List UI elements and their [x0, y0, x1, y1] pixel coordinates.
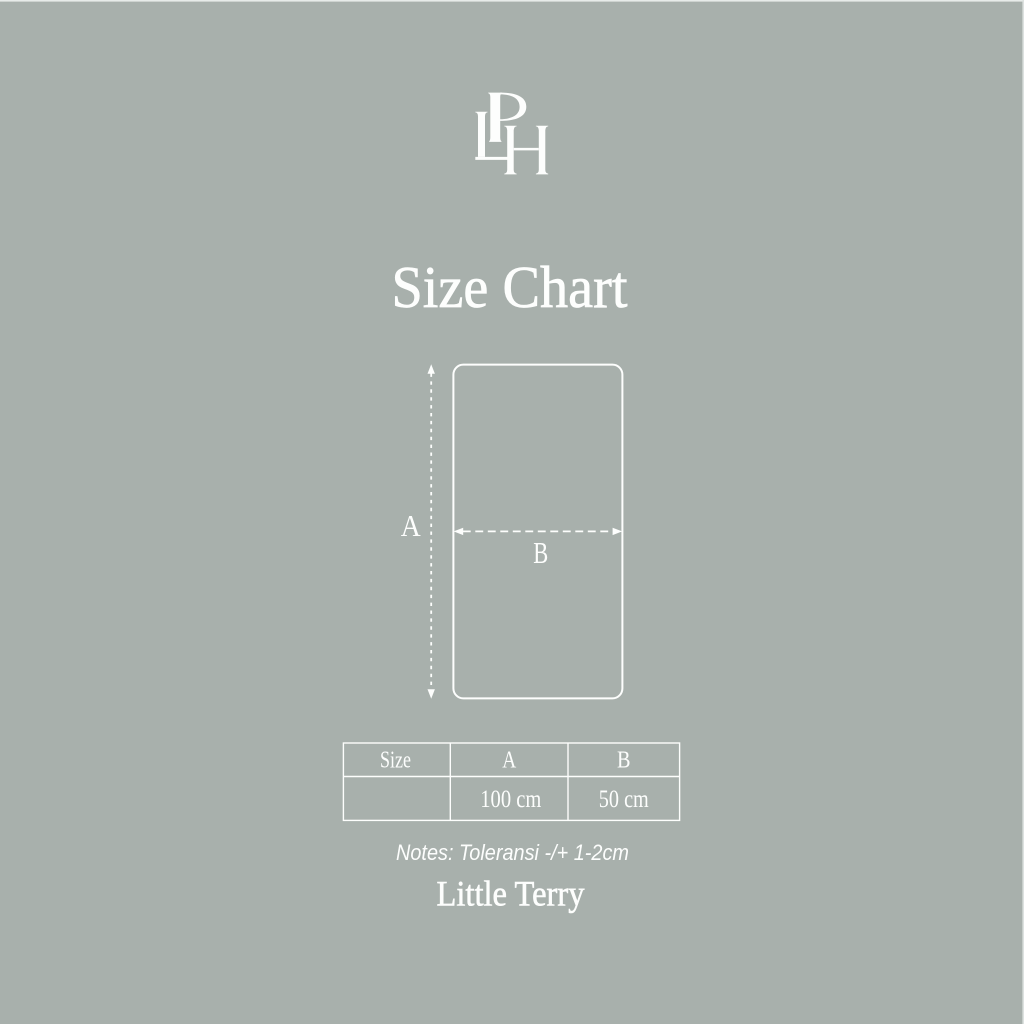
svg-text:B: B: [533, 536, 548, 570]
svg-text:Size: Size: [380, 747, 411, 773]
svg-text:Little Terry: Little Terry: [437, 874, 585, 914]
svg-text:Size Chart: Size Chart: [392, 255, 628, 320]
svg-text:A: A: [502, 747, 517, 773]
svg-text:Notes: Toleransi -/+ 1-2cm: Notes: Toleransi -/+ 1-2cm: [396, 840, 629, 865]
svg-text:100 cm: 100 cm: [480, 786, 541, 813]
svg-text:B: B: [617, 747, 631, 773]
svg-text:A: A: [401, 509, 421, 543]
svg-text:50 cm: 50 cm: [599, 786, 649, 813]
